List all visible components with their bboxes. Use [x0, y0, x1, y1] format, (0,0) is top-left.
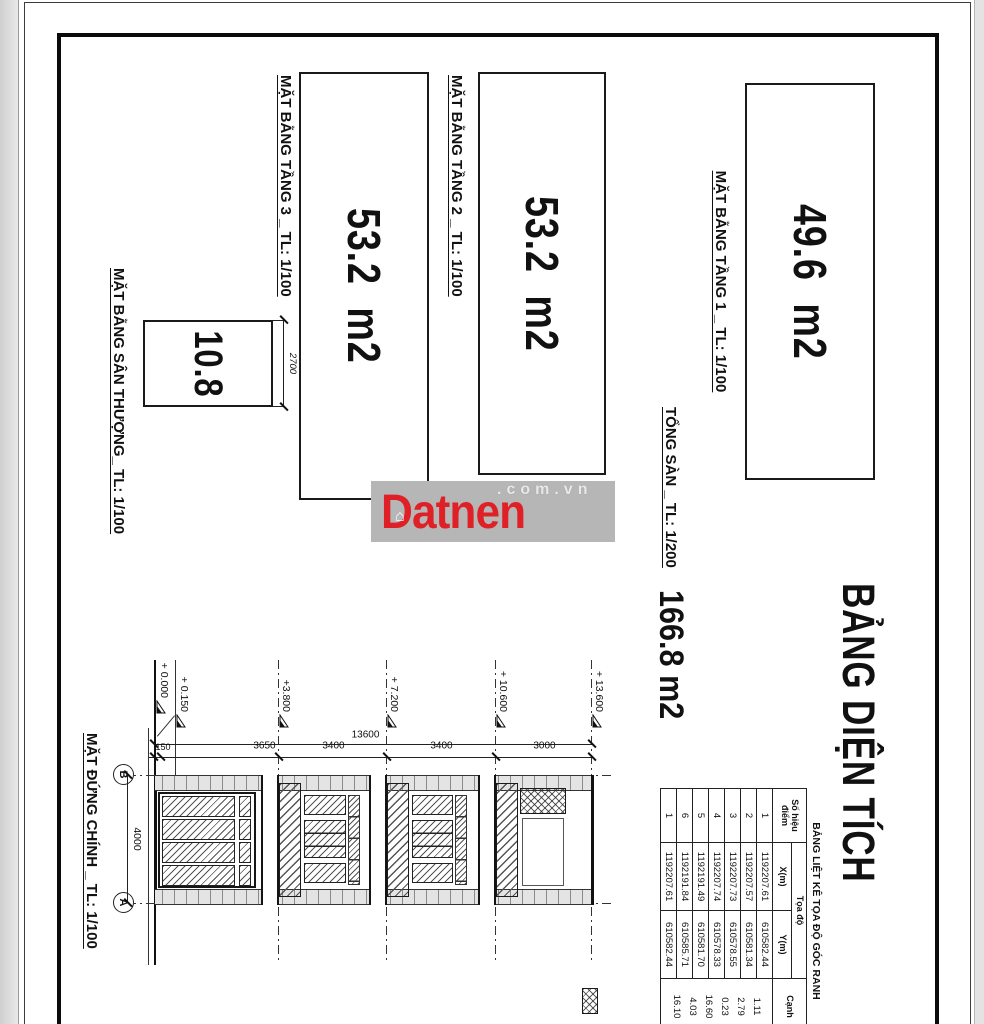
level-flag-icon: [156, 700, 166, 714]
plan-floor2-outline: 53.2 m2: [478, 72, 606, 475]
level-label-7200: + 7.200: [388, 660, 400, 712]
col-header-edge: Cạnh: [773, 979, 807, 1024]
storey-dim-3000: 3000: [525, 741, 565, 752]
materials-legend-swatch: [582, 988, 598, 1014]
balcony-parapet-hatched: [387, 783, 409, 897]
plan-roof-outline: 10.8: [143, 320, 273, 407]
slab-band: [261, 775, 279, 905]
level-flag-icon: [387, 714, 397, 728]
drawing-sheet: 49.6 m2 MẶT BẰNG TẦNG 1 _ TL: 1/100 53.2…: [18, 0, 975, 1024]
floor3-window: [412, 795, 453, 815]
slab-band: [369, 775, 387, 905]
level-flag-icon: [176, 714, 186, 728]
width-dim-line: [127, 775, 128, 903]
overall-dim-text: 13600: [344, 730, 388, 741]
floor3-transom: [455, 795, 467, 885]
roof-dim-ext: [273, 406, 283, 407]
coordinate-table-grid: Số hiệu điểm Tọa độ Cạnh X(m) Y(m) 11192…: [660, 788, 807, 1024]
storey-dim-3400b: 3400: [314, 741, 354, 752]
plan-floor3-outline: 53.2 m2: [299, 72, 429, 500]
elevation-label: MẶT ĐỨNG CHÍNH _ TL: 1/100: [83, 733, 100, 949]
storey-dim-3400a: 3400: [422, 741, 462, 752]
plan-floor3-label: MẶT BẰNG TẦNG 3 _ TL: 1/100: [277, 75, 294, 297]
roof-parapet-wall: [522, 818, 564, 886]
slab-band: [478, 775, 496, 905]
roof-dim-ext: [273, 320, 283, 321]
floor2-window-wide: [304, 820, 346, 858]
width-dim-text: 4000: [131, 775, 143, 903]
house-icon: ⌂: [395, 508, 405, 526]
level-label-10600: + 10.600: [497, 660, 509, 712]
shopfront-transom-pane: [239, 819, 251, 840]
coordinate-table-title: BẢNG LIỆT KÊ TỌA ĐỘ GÓC RANH: [810, 788, 822, 1024]
plan-roof-area: 10.8: [186, 330, 231, 397]
floor2-transom: [348, 795, 360, 885]
parapet-top-line: [592, 775, 595, 905]
col-header-point: Số hiệu điểm: [773, 789, 807, 843]
plan-floor2-area: 53.2 m2: [515, 196, 569, 351]
storey-dim-150: 150: [148, 742, 178, 752]
balcony-parapet-hatched: [496, 783, 518, 897]
shopfront-pane: [162, 842, 235, 863]
roof-dim-text: 2700: [287, 320, 298, 407]
level-flag-icon: [496, 714, 506, 728]
level-label-0150: + 0.150: [178, 660, 190, 712]
plan-floor1-label: MẶT BẰNG TẦNG 1 _ TL: 1/100: [712, 83, 729, 480]
elevation-facade: [155, 775, 594, 905]
plan-roof-label: MẶT BẰNG SÂN THƯỢNG_ TL: 1/100: [110, 268, 127, 534]
floor3-window-wide: [412, 820, 453, 858]
level-label-0000: + 0.000: [158, 646, 170, 698]
plan-floor1-area: 49.6 m2: [783, 204, 837, 359]
shopfront-transom-pane: [239, 796, 251, 817]
coordinate-table: BẢNG LIỆT KÊ TỌA ĐỘ GÓC RANH Số hiệu điể…: [660, 788, 822, 1024]
plan-floor3-area: 53.2 m2: [337, 208, 391, 363]
floor2-window: [304, 863, 346, 883]
col-header-x: X(m): [773, 843, 792, 911]
shopfront-pane: [162, 865, 235, 886]
col-header-coord: Tọa độ: [792, 843, 807, 979]
shopfront-pane: [162, 796, 235, 817]
shopfront-transom-pane: [239, 842, 251, 863]
watermark-banner: .com.vn Datnen ⌂: [371, 481, 615, 542]
plan-floor2-label: MẶT BẰNG TẦNG 2 _ TL: 1/100: [448, 75, 465, 297]
shopfront-pane: [162, 819, 235, 840]
storey-dim-line: [149, 757, 592, 758]
floor3-window: [412, 863, 453, 883]
floor2-window: [304, 795, 346, 815]
plan-floor1-outline: 49.6 m2: [745, 83, 875, 480]
shopfront-transom-pane: [239, 865, 251, 886]
level-label-13600: + 13.600: [593, 660, 605, 712]
col-header-y: Y(m): [773, 911, 792, 979]
level-flag-icon: [279, 714, 289, 728]
roof-floor-window: [520, 788, 566, 814]
level-flag-icon: [592, 714, 602, 728]
level-label-3800: +3.800: [280, 660, 292, 712]
ground-line-2: [148, 728, 149, 965]
scanner-edge: [0, 0, 18, 1024]
roof-dim-line: [283, 320, 284, 407]
total-floor-value: 166.8 m2: [651, 590, 690, 719]
sheet-title: BẢNG DIỆN TÍCH: [832, 583, 884, 883]
table-row: 11192207.61 610582.441.11: [757, 789, 773, 1024]
storey-dim-3650: 3650: [245, 741, 285, 752]
total-floor-label: TỔNG SÀN _ TL: 1/200: [662, 407, 679, 568]
ground-floor-shopfront: [158, 792, 256, 888]
balcony-parapet-hatched: [279, 783, 301, 897]
